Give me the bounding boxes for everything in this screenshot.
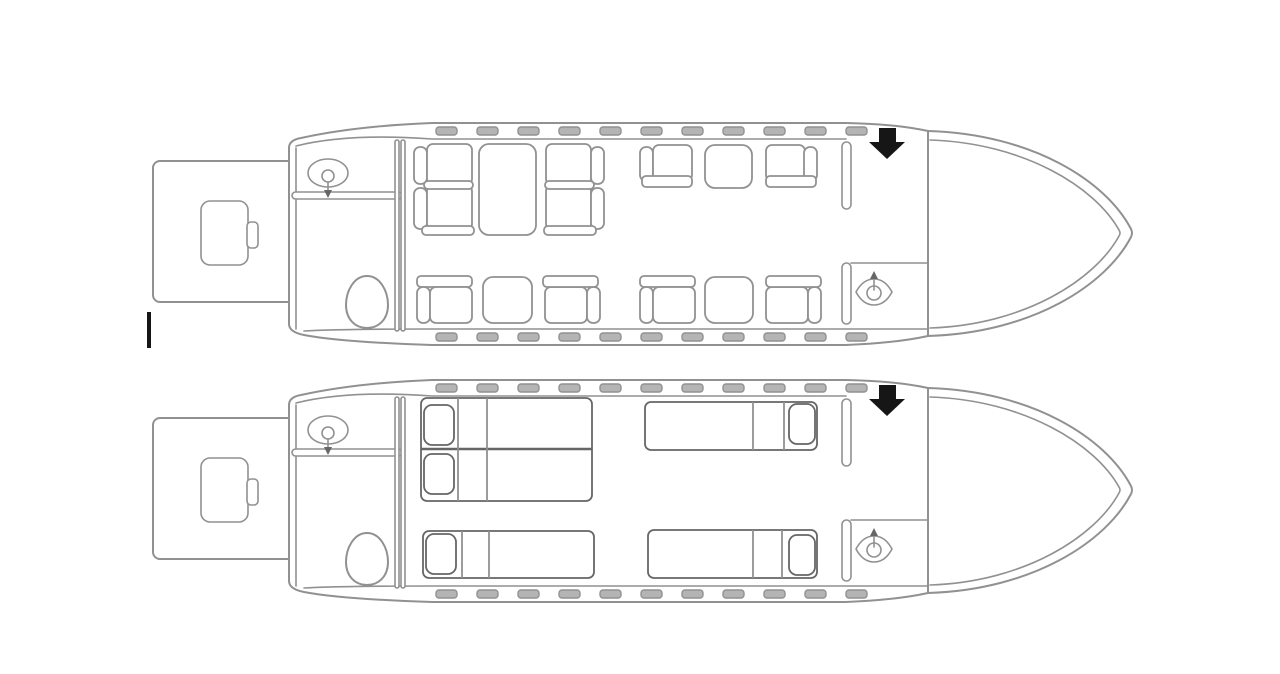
seat xyxy=(546,144,591,185)
cabin-window xyxy=(723,590,744,598)
cabin-window xyxy=(805,127,826,135)
seat-armrest xyxy=(422,226,474,235)
cabin-window xyxy=(682,590,703,598)
seat xyxy=(427,185,472,230)
cabin-window xyxy=(682,127,703,135)
pillow xyxy=(789,535,815,575)
seat xyxy=(545,287,587,323)
cursor-mark xyxy=(147,312,151,348)
table xyxy=(479,144,536,235)
cabin-window xyxy=(723,333,744,341)
seat xyxy=(546,185,591,230)
table xyxy=(705,145,752,188)
seat-armrest xyxy=(544,226,596,235)
cabin-window xyxy=(600,333,621,341)
cabin-window xyxy=(600,127,621,135)
cabin-window xyxy=(559,590,580,598)
cabin-window xyxy=(436,384,457,392)
table xyxy=(483,277,532,323)
seat xyxy=(653,287,695,323)
seat-back xyxy=(414,188,427,229)
pillow xyxy=(789,404,815,444)
cabin-window xyxy=(436,333,457,341)
seat-back xyxy=(417,287,430,323)
cabin-window xyxy=(805,590,826,598)
cabin-window xyxy=(559,384,580,392)
seat xyxy=(427,144,472,185)
seat xyxy=(430,287,472,323)
cabin-window xyxy=(846,333,867,341)
cabin-window xyxy=(805,384,826,392)
plane-day-configuration xyxy=(153,123,1132,345)
seat-armrest xyxy=(766,276,821,287)
cabin-window xyxy=(764,384,785,392)
cabin-window xyxy=(477,127,498,135)
seat-back xyxy=(640,287,653,323)
cabin-window xyxy=(682,384,703,392)
table xyxy=(705,277,753,323)
seat-armrest xyxy=(545,181,594,189)
seat-back xyxy=(808,287,821,323)
cabin-window xyxy=(723,384,744,392)
aircraft-floorplan-diagram xyxy=(0,0,1280,674)
pillow xyxy=(424,454,454,494)
cabin-window xyxy=(846,384,867,392)
seat-armrest xyxy=(417,276,472,287)
seat-armrest xyxy=(424,181,473,189)
seat-back xyxy=(587,287,600,323)
cabin-window xyxy=(846,127,867,135)
seat-back xyxy=(591,147,604,184)
cabin-window xyxy=(764,127,785,135)
cabin-window xyxy=(641,384,662,392)
cabin-window xyxy=(559,333,580,341)
cabin-window xyxy=(682,333,703,341)
cabin-window xyxy=(477,384,498,392)
cabin-window xyxy=(805,333,826,341)
floorplan-canvas xyxy=(0,0,1280,674)
cabin-window xyxy=(518,333,539,341)
cabin-window xyxy=(518,127,539,135)
cabin-window xyxy=(764,590,785,598)
cabin-window xyxy=(518,384,539,392)
pillow xyxy=(424,405,454,445)
seat-armrest xyxy=(642,176,692,187)
cabin-window xyxy=(477,590,498,598)
cabin-window xyxy=(641,333,662,341)
cabin-window xyxy=(764,333,785,341)
cabin-window xyxy=(600,590,621,598)
cabin-window xyxy=(436,127,457,135)
seat-armrest xyxy=(640,276,695,287)
pillow xyxy=(426,534,456,574)
seat-back xyxy=(591,188,604,229)
cabin-window xyxy=(641,127,662,135)
cabin-window xyxy=(559,127,580,135)
seat-armrest xyxy=(543,276,598,287)
cabin-window xyxy=(641,590,662,598)
plane-night-configuration xyxy=(153,380,1132,602)
cabin-window xyxy=(477,333,498,341)
cabin-window xyxy=(846,590,867,598)
cabin-window xyxy=(436,590,457,598)
cabin-window xyxy=(600,384,621,392)
seat xyxy=(766,287,808,323)
cabin-window xyxy=(518,590,539,598)
cabin-window xyxy=(723,127,744,135)
seat-armrest xyxy=(766,176,816,187)
seat-back xyxy=(414,147,427,184)
